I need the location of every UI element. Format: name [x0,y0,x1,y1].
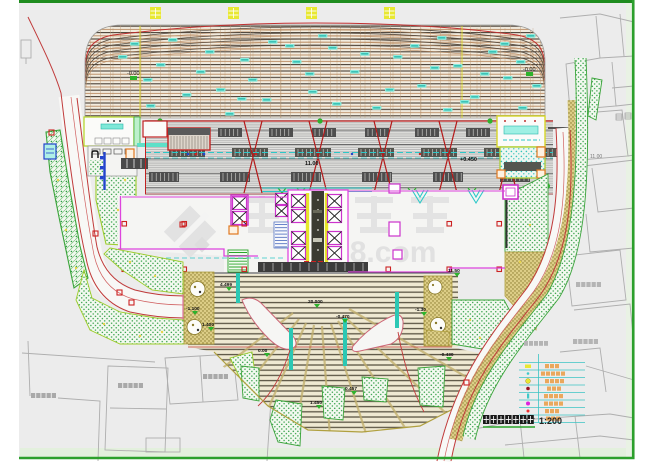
svg-text:11.00: 11.00 [590,154,602,160]
svg-text:1:200: 1:200 [539,416,562,426]
svg-text:11.00: 11.00 [305,161,318,167]
svg-text:+0.450: +0.450 [460,157,477,163]
